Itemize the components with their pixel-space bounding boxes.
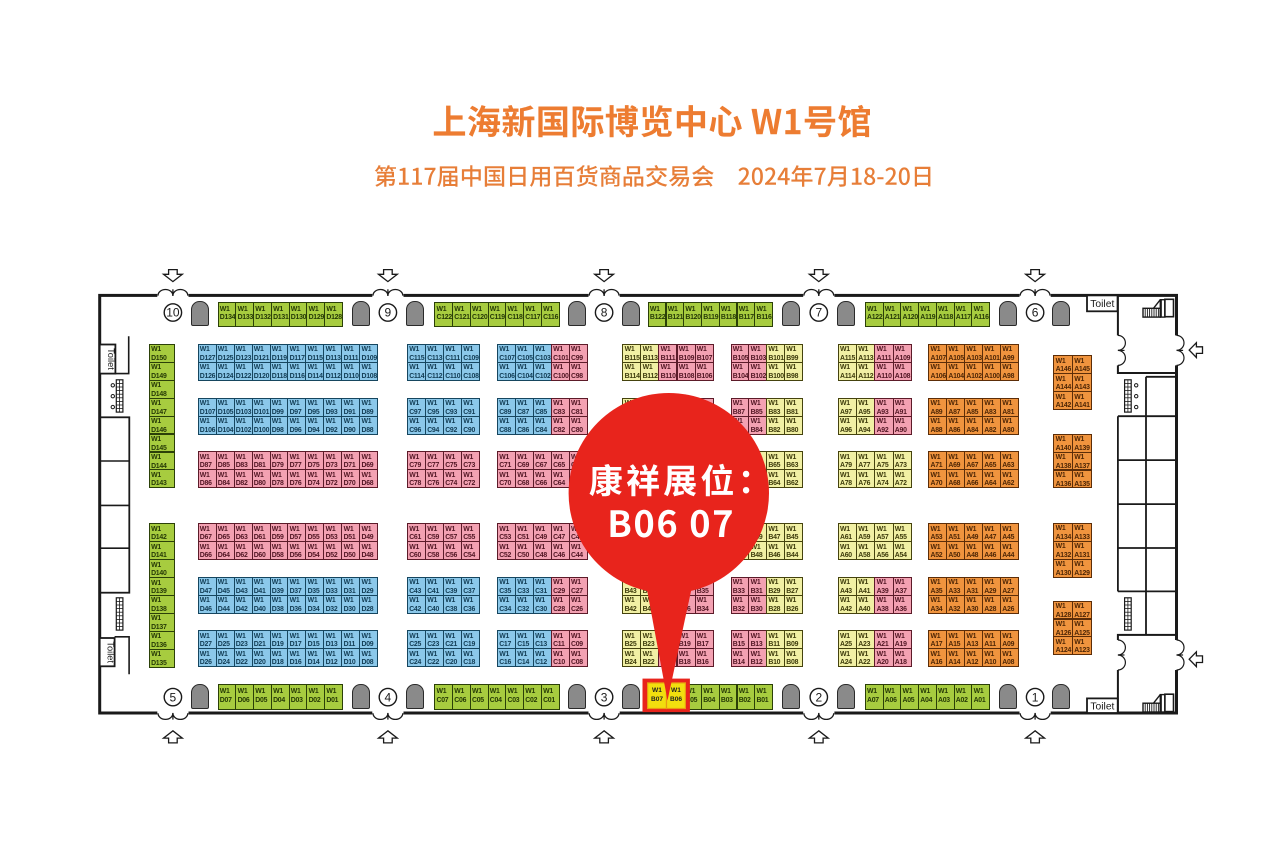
svg-text:B06: B06 <box>670 696 682 703</box>
svg-text:B07: B07 <box>651 696 663 703</box>
svg-text:W1: W1 <box>671 687 681 694</box>
svg-text:W1: W1 <box>652 687 662 694</box>
